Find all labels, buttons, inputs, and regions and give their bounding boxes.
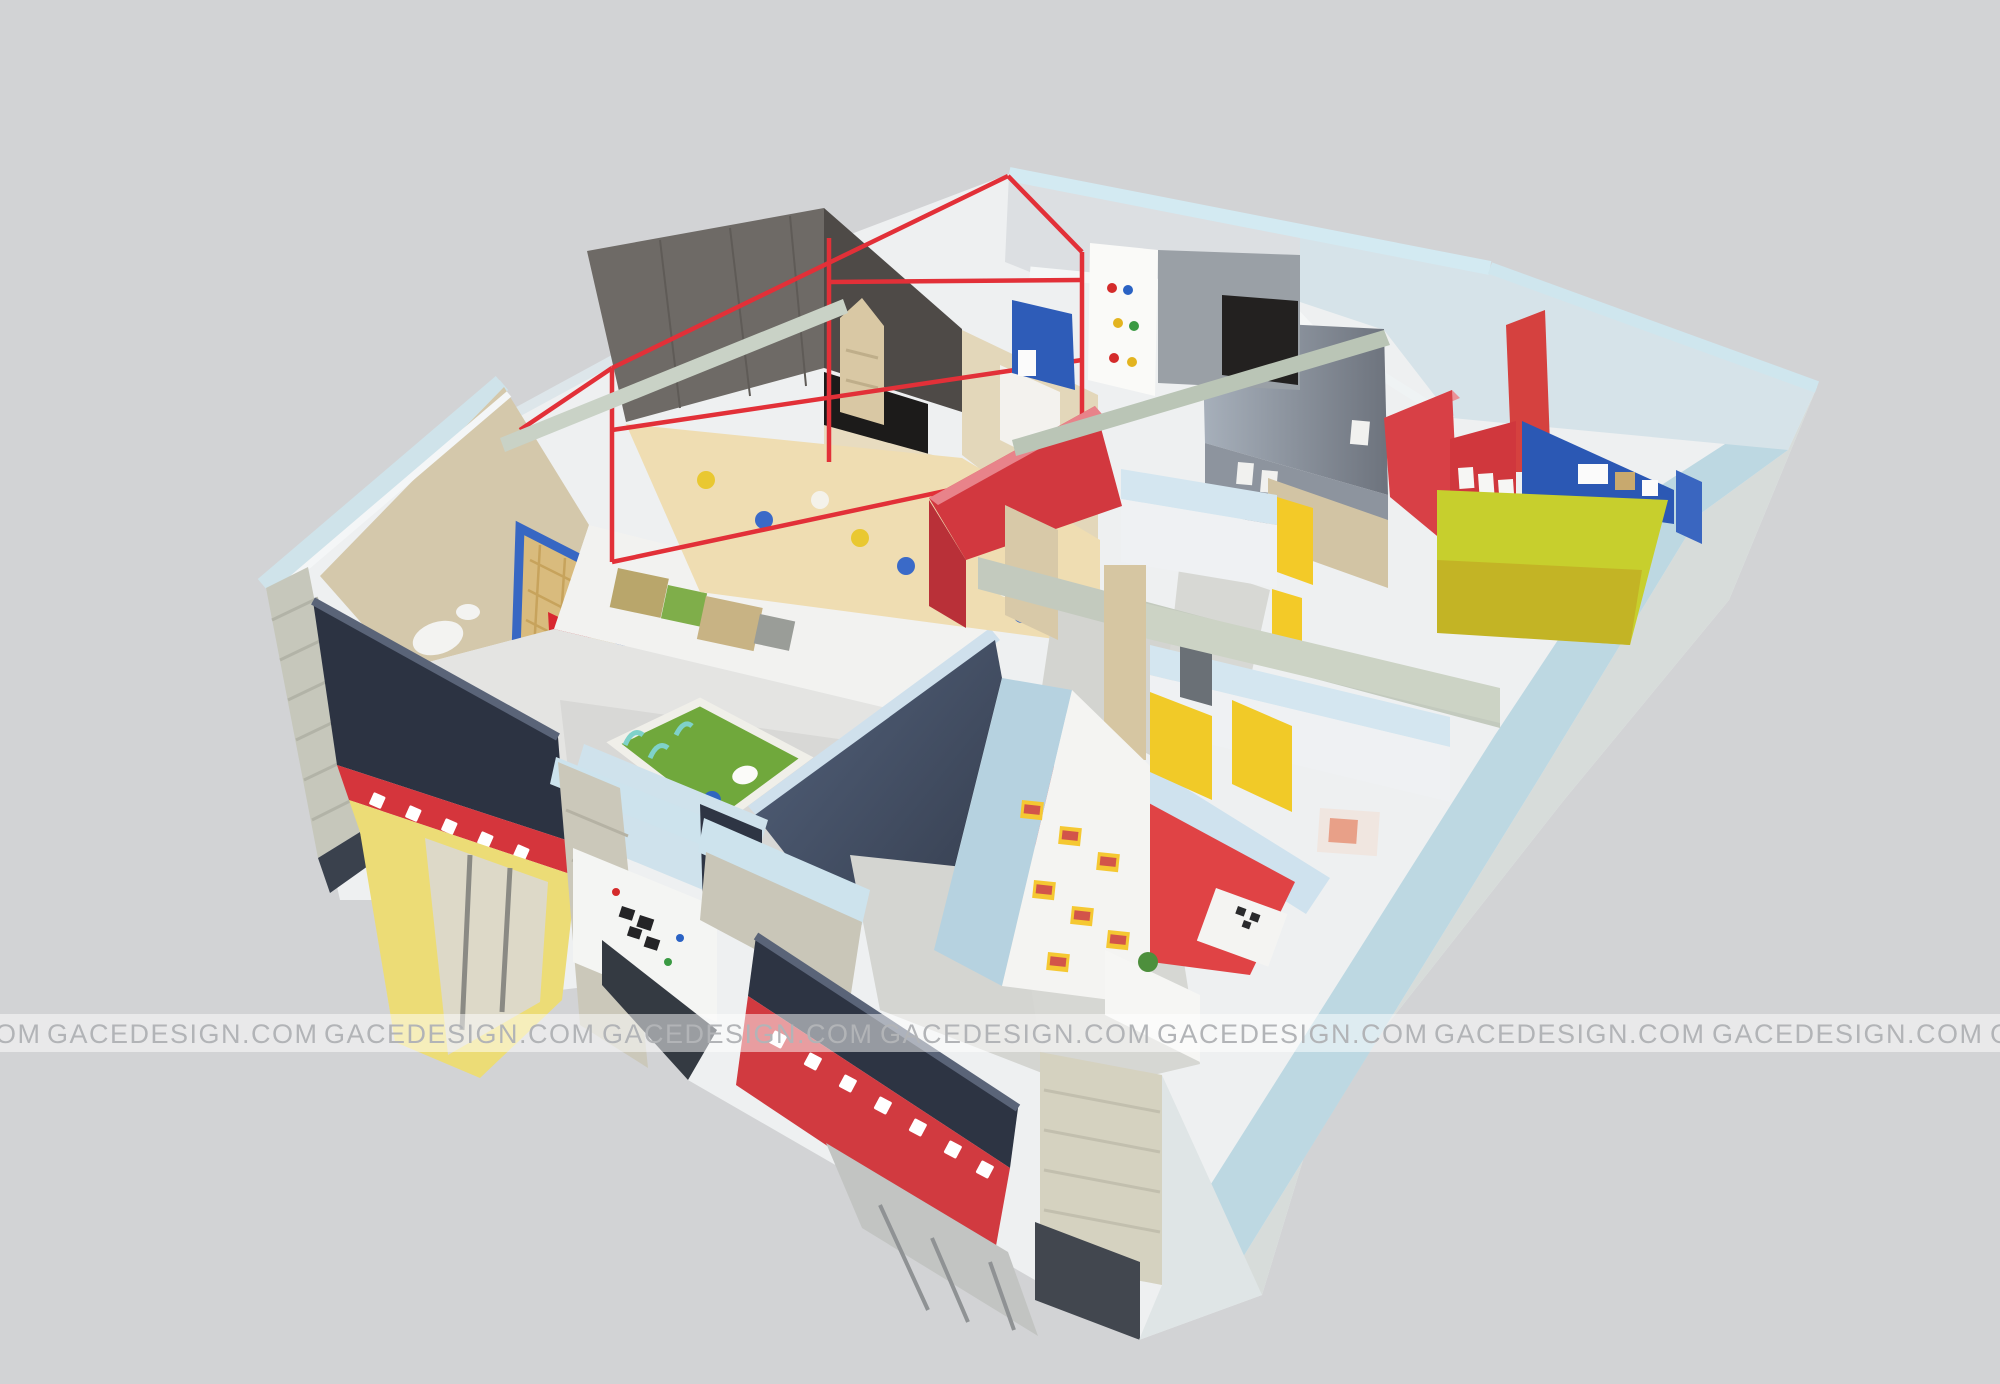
svg-text:GACEDESIGN.COM: GACEDESIGN.COM — [324, 1019, 596, 1049]
svg-text:GACEDESIGN.COM: GACEDESIGN.COM — [880, 1019, 1152, 1049]
svg-text:GACEDESIGN.COM: GACEDESIGN.COM — [0, 1019, 42, 1049]
svg-text:GACEDESIGN.COM: GACEDESIGN.COM — [1712, 1019, 1984, 1049]
svg-text:GACEDESIGN.COM: GACEDESIGN.COM — [1157, 1019, 1429, 1049]
svg-text:GACEDESIGN.COM: GACEDESIGN.COM — [602, 1019, 874, 1049]
svg-text:GACEDESIGN.COM: GACEDESIGN.COM — [1990, 1019, 2000, 1049]
svg-text:GACEDESIGN.COM: GACEDESIGN.COM — [1434, 1019, 1706, 1049]
svg-text:GACEDESIGN.COM: GACEDESIGN.COM — [47, 1019, 319, 1049]
